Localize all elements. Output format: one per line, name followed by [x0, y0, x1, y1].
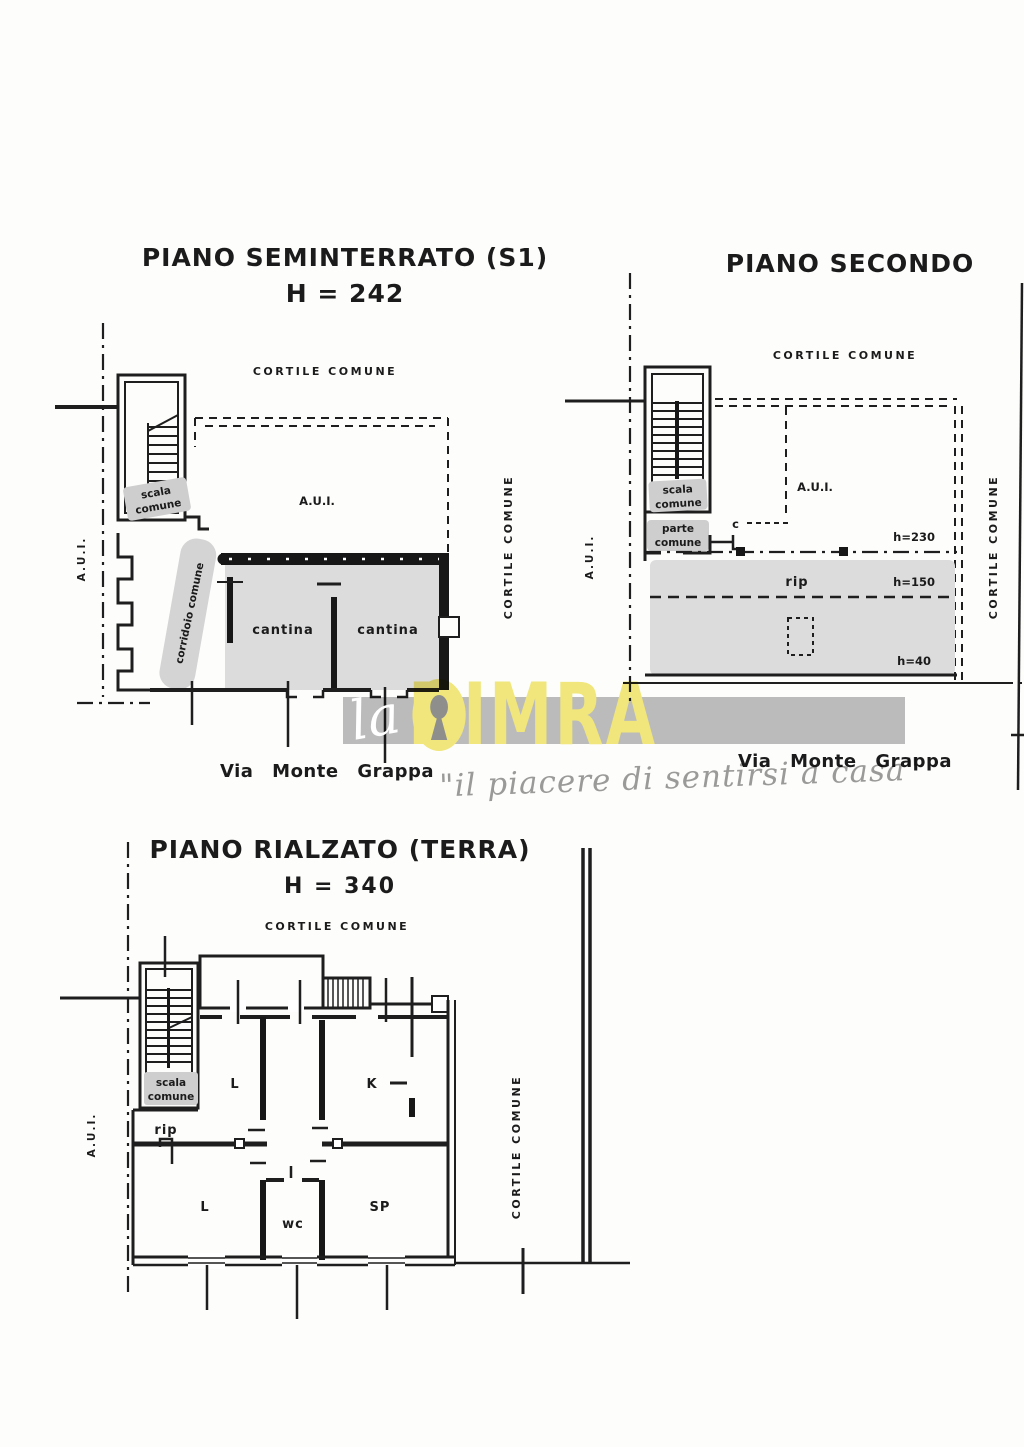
wall	[185, 517, 209, 529]
boundary-double-wall	[583, 848, 590, 1263]
plan-rialzato-courtyard-top-label: CORTILE COMUNE	[265, 920, 409, 933]
room-label-l-lower: L	[200, 1200, 209, 1215]
dashed-boundary-top	[715, 399, 957, 406]
wall-node	[218, 554, 229, 565]
plan-s1-title: PIANO SEMINTERRATO (S1)	[142, 243, 548, 272]
corridor-band: corridoio comune	[157, 536, 219, 692]
room-label-l-upper: L	[230, 1077, 239, 1092]
aui-left-label: A.U.I.	[86, 1113, 98, 1158]
height-label-230: h=230	[893, 530, 935, 544]
boundary-line-right	[1018, 283, 1022, 790]
stair-label-chip: scala comune	[144, 1072, 198, 1105]
stair-label-2: comune	[148, 1091, 194, 1103]
aui-left-label: A.U.I.	[584, 535, 596, 580]
floorplan-sheet: PIANO SEMINTERRATO (S1) H = 242 CORTILE …	[0, 0, 1024, 1447]
floorplan-rialzato: PIANO RIALZATO (TERRA) H = 340 CORTILE C…	[60, 822, 640, 1327]
survey-ticks	[207, 1265, 387, 1319]
partition-wall	[227, 577, 233, 643]
door-marks	[248, 1128, 328, 1178]
partition-wall	[319, 1020, 325, 1120]
room-label-rip: rip	[785, 575, 808, 590]
dimora-logo: DIM RA	[408, 672, 657, 758]
plan-rialzato-title: PIANO RIALZATO (TERRA)	[149, 835, 530, 864]
facade-wall	[221, 553, 445, 565]
partition-wall	[319, 1180, 325, 1260]
partition-wall	[260, 1180, 266, 1260]
aui-left-label: A.U.I.	[76, 537, 88, 582]
courtyard-right-label: CORTILE COMUNE	[987, 475, 1000, 619]
window-symbol	[432, 996, 448, 1012]
room-label-wc: wc	[282, 1217, 304, 1232]
line-marker	[839, 547, 848, 556]
partition-wall	[260, 1017, 266, 1120]
line-marker	[736, 547, 745, 556]
room-label-k: K	[366, 1077, 377, 1092]
aui-area-label: A.U.I.	[797, 480, 833, 494]
aui-dashed-area	[195, 418, 448, 555]
plan-s1-height: H = 242	[286, 279, 404, 308]
courtyard-right-label: CORTILE COMUNE	[510, 1075, 523, 1219]
partition-wall	[409, 1098, 415, 1117]
stair-label-2: comune	[655, 497, 702, 511]
balcony-grid	[323, 978, 370, 1008]
plan-rialzato-height: H = 340	[284, 874, 396, 899]
room-label-sp: SP	[370, 1200, 391, 1215]
room-label-rip: rip	[154, 1123, 177, 1138]
watermark-la: la	[345, 682, 405, 753]
room-label-cantina-2: cantina	[357, 623, 418, 638]
courtyard-right-label: CORTILE COMUNE	[502, 475, 515, 619]
plan-s1-courtyard-top-label: CORTILE COMUNE	[253, 365, 397, 378]
stair-label-chip: scala comune	[123, 477, 192, 522]
dashed-boundary-right	[955, 406, 962, 683]
parte-label-1: parte	[662, 523, 694, 535]
wall	[439, 553, 449, 617]
keyhole-icon	[410, 676, 468, 754]
stair-label-1: scala	[156, 1077, 186, 1089]
height-label-40: h=40	[897, 654, 931, 668]
window-symbol	[439, 617, 459, 637]
bay-window	[200, 956, 323, 1008]
plan-secondo-title: PIANO SECONDO	[726, 249, 974, 278]
door-opening	[710, 535, 743, 549]
stair-label-1: scala	[662, 483, 693, 497]
stair-label-chip: scala comune	[648, 479, 708, 513]
parte-comune-chip: parte comune	[647, 520, 709, 551]
height-label-150: h=150	[893, 575, 935, 589]
door-hinge	[333, 1139, 342, 1148]
plan-secondo-courtyard-top-label: CORTILE COMUNE	[773, 349, 917, 362]
brand-text-right: RA	[554, 672, 657, 758]
outer-wall-jagged	[118, 533, 150, 690]
door-hinge	[235, 1139, 244, 1148]
aui-area-label: A.U.I.	[299, 494, 335, 508]
partition-wall	[331, 597, 337, 690]
parte-label-2: comune	[655, 537, 701, 549]
closet-label: c	[732, 517, 739, 531]
room-label-cantina-1: cantina	[252, 623, 313, 638]
window-gap	[288, 1000, 304, 1012]
